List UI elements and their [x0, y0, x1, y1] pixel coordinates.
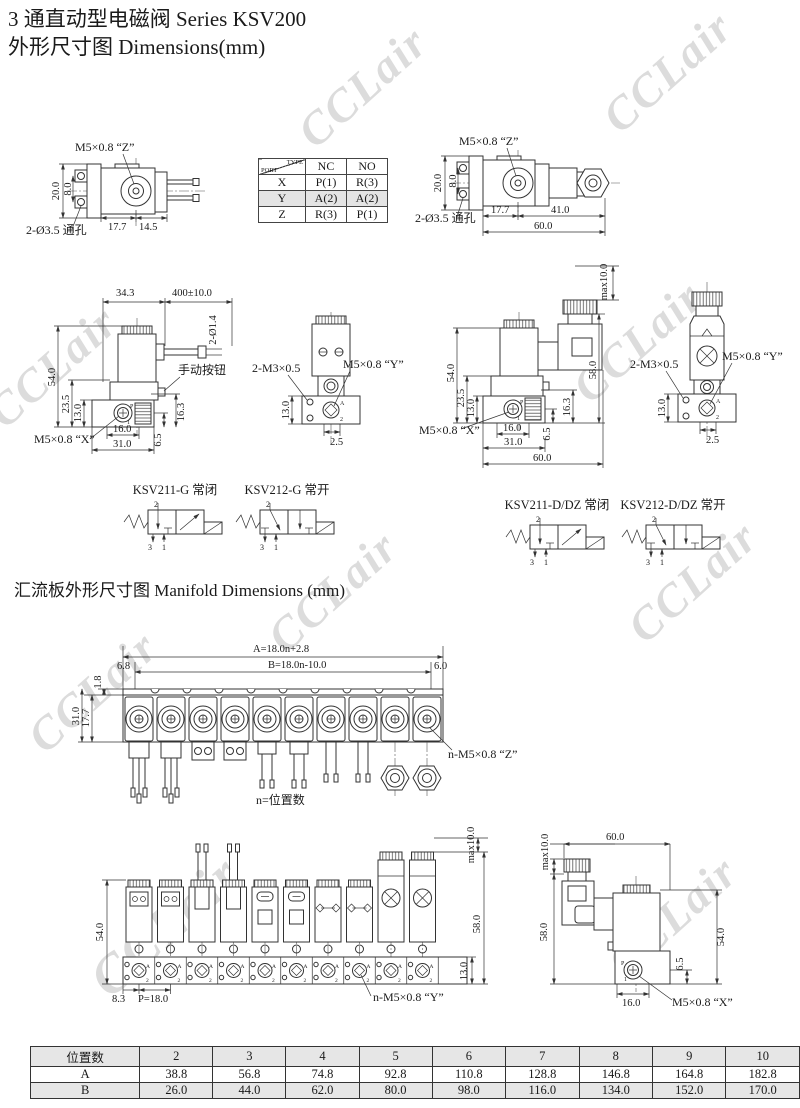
dim-label: 16.0 [113, 424, 131, 435]
dim-label: 13.0 [466, 399, 477, 417]
col-header: 5 [359, 1047, 432, 1067]
thread-callout: M5×0.8 “Z” [75, 140, 134, 154]
dim-label: 34.3 [116, 288, 134, 299]
ksv-g-front-view-drawing: A 2 13.0 2.5 2-M3×0.5 M5×0.8 “Y” [250, 312, 410, 452]
dim-label: 54.0 [446, 364, 457, 382]
dim-label: 1.8 [93, 675, 104, 688]
port-letter: 2 [209, 978, 212, 984]
dim-label: 6.8 [117, 661, 130, 672]
dim-label: 17.7 [108, 222, 126, 233]
dim-label: 23.5 [61, 395, 72, 413]
symbol-ksv211d: KSV211-D/DZ 常闭 2 3 1 [492, 494, 622, 573]
dim-label: 2-Ø1.4 [208, 315, 219, 345]
table-row: Z R(3) P(1) [259, 207, 388, 223]
symbol-label: KSV212-D/DZ 常开 [608, 494, 738, 513]
dim-label: 8.3 [112, 994, 125, 1005]
dim-label: 2.5 [330, 437, 343, 448]
port-letter: A [304, 964, 308, 970]
screws-callout: 2-M3×0.5 [252, 361, 300, 375]
position-size-table: 位置数 2 3 4 5 6 7 8 9 10 A 38.8 56.8 74.8 … [30, 1046, 800, 1099]
manual-button-callout: 手动按钮 [178, 362, 226, 377]
value-cell: 44.0 [213, 1083, 286, 1099]
valve-symbol-nc: 2 3 1 [118, 498, 233, 553]
no-cell: A(2) [347, 191, 388, 207]
dim-label: 58.0 [472, 915, 483, 933]
col-nc: NC [306, 159, 347, 175]
dim-label: 20.0 [51, 182, 62, 200]
port-cell: X [259, 175, 306, 191]
thread-callout: M5×0.8 “X” [419, 423, 480, 437]
port-letter: A [430, 964, 434, 970]
corner-type-label: TYPE [287, 159, 303, 166]
dim-label: 16.0 [622, 998, 640, 1009]
port-number: 3 [148, 543, 152, 552]
dim-label: 20.0 [433, 174, 444, 192]
table-row-a: A 38.8 56.8 74.8 92.8 110.8 128.8 146.8 … [31, 1067, 800, 1083]
dim-label: 13.0 [657, 399, 668, 417]
port-letter: A [335, 964, 339, 970]
thread-callout: M5×0.8 “Y” [343, 357, 404, 371]
value-cell: 80.0 [359, 1083, 432, 1099]
port-letter: 1 [624, 977, 627, 983]
port-letter: A [209, 964, 213, 970]
port-letter: 2 [241, 978, 244, 984]
port-letter: 2 [367, 978, 370, 984]
dim-label: 6.5 [542, 427, 553, 440]
dim-label: 54.0 [47, 368, 58, 386]
row-label: B [31, 1083, 140, 1099]
symbol-ksv211g: KSV211-G 常闭 2 3 1 [110, 479, 240, 558]
dim-label: P=18.0 [138, 994, 168, 1005]
dim-label: 58.0 [539, 923, 550, 941]
col-no: NO [347, 159, 388, 175]
port-letter: A [716, 399, 721, 405]
dim-label: 60.0 [606, 832, 624, 843]
port-number: 2 [652, 515, 656, 524]
port-letter: 2 [340, 417, 343, 423]
dim-label: 13.0 [281, 401, 292, 419]
screws-callout: 2-M3×0.5 [630, 357, 678, 371]
port-letter: 2 [304, 978, 307, 984]
dim-label: 17.7 [491, 205, 509, 216]
ksv-g-side-view-drawing: 34.3 400±10.0 2-Ø1.4 P 1 54.0 23.5 13.0 … [20, 282, 240, 467]
dim-label: 17.7 [81, 709, 92, 727]
dim-label: 31.0 [113, 439, 131, 450]
col-header: 7 [506, 1047, 579, 1067]
port-letter: A [398, 964, 402, 970]
dim-label: 16.3 [562, 398, 573, 416]
value-cell: 152.0 [653, 1083, 726, 1099]
value-cell: 38.8 [140, 1067, 213, 1083]
dim-label: 54.0 [95, 923, 106, 941]
dim-label: 6.5 [153, 433, 164, 446]
port-letter: 1 [517, 416, 520, 422]
symbol-label: KSV212-G 常开 [222, 479, 352, 498]
port-letter: A [340, 401, 345, 407]
table-row: Y A(2) A(2) [259, 191, 388, 207]
thread-callout: n-M5×0.8 “Y” [373, 990, 444, 1004]
port-number: 3 [646, 558, 650, 567]
symbol-label: KSV211-G 常闭 [110, 479, 240, 498]
dim-label: B=18.0n-10.0 [268, 660, 326, 671]
value-cell: 26.0 [140, 1083, 213, 1099]
port-letter: 2 [178, 978, 181, 984]
port-number: 1 [544, 558, 548, 567]
valve-top-view-g-drawing: 20.0 8.0 17.7 14.5 M5×0.8 “Z” 2-Ø3.5 通孔 [25, 138, 255, 253]
dim-label: 60.0 [533, 453, 551, 464]
value-cell: 164.8 [653, 1067, 726, 1083]
valve-symbol-no: 2 3 1 [230, 498, 345, 553]
holes-callout: 2-Ø3.5 通孔 [26, 223, 87, 237]
port-number: 1 [274, 543, 278, 552]
port-number: 1 [162, 543, 166, 552]
value-cell: 56.8 [213, 1067, 286, 1083]
dim-label: 13.0 [459, 962, 470, 980]
value-cell: 62.0 [286, 1083, 359, 1099]
table-row-b: B 26.0 44.0 62.0 80.0 98.0 116.0 134.0 1… [31, 1083, 800, 1099]
port-number: 1 [660, 558, 664, 567]
port-letter: A [178, 964, 182, 970]
dim-label: 6.0 [434, 661, 447, 672]
page-title-line1: 3 通直动型电磁阀 Series KSV200 [8, 6, 306, 34]
dim-label: 16.0 [503, 423, 521, 434]
symbol-label: KSV211-D/DZ 常闭 [492, 494, 622, 513]
value-cell: 182.8 [726, 1067, 800, 1083]
col-header: 9 [653, 1047, 726, 1067]
dim-label: 6.5 [675, 957, 686, 970]
port-number: 2 [154, 500, 158, 509]
col-header: 6 [432, 1047, 505, 1067]
port-letter: A [146, 964, 150, 970]
dim-label: max10.0 [466, 827, 477, 863]
dim-label: 54.0 [716, 928, 727, 946]
port-cell: Y [259, 191, 306, 207]
value-cell: 110.8 [432, 1067, 505, 1083]
value-cell: 128.8 [506, 1067, 579, 1083]
port-letter: 2 [146, 978, 149, 984]
no-cell: R(3) [347, 175, 388, 191]
corner-port-label: PORT [261, 167, 277, 174]
port-letter: 2 [398, 978, 401, 984]
manifold-section-title: 汇流板外形尺寸图 Manifold Dimensions (mm) [14, 576, 345, 601]
dim-label: 13.0 [73, 404, 84, 422]
port-number: 2 [266, 500, 270, 509]
port-letter: A [241, 964, 245, 970]
value-cell: 146.8 [579, 1067, 652, 1083]
port-letter: A [272, 964, 276, 970]
thread-callout: n-M5×0.8 “Z” [448, 747, 517, 761]
value-cell: 98.0 [432, 1083, 505, 1099]
holes-callout: 2-Ø3.5 通孔 [415, 211, 476, 225]
col-header: 10 [726, 1047, 800, 1067]
manifold-side-view-drawing: 60.0 max10.0 P 1 58.0 54.0 6.5 16.0 M5×0… [520, 818, 780, 1018]
dim-label: 58.0 [588, 361, 599, 379]
header-label: 位置数 [31, 1047, 140, 1067]
nc-cell: P(1) [306, 175, 347, 191]
thread-callout: M5×0.8 “Y” [722, 349, 783, 363]
page-title: 3 通直动型电磁阀 Series KSV200 外形尺寸图 Dimensions… [8, 6, 306, 61]
value-cell: 92.8 [359, 1067, 432, 1083]
table-row: X P(1) R(3) [259, 175, 388, 191]
port-letter: 2 [430, 978, 433, 984]
value-cell: 116.0 [506, 1083, 579, 1099]
port-number: 2 [536, 515, 540, 524]
col-header: 2 [140, 1047, 213, 1067]
port-number: 3 [260, 543, 264, 552]
dim-label: 41.0 [551, 205, 569, 216]
ksv-d-front-view-drawing: A 2 13.0 2.5 2-M3×0.5 M5×0.8 “Y” [628, 268, 800, 453]
port-cell: Z [259, 207, 306, 223]
valve-symbol-no: 2 3 1 [616, 513, 731, 568]
value-cell: 170.0 [726, 1083, 800, 1099]
dim-label: max10.0 [540, 834, 551, 870]
col-header: 3 [213, 1047, 286, 1067]
dim-label: 14.5 [139, 222, 157, 233]
value-cell: 74.8 [286, 1067, 359, 1083]
thread-callout: M5×0.8 “X” [34, 432, 95, 446]
nc-cell: R(3) [306, 207, 347, 223]
valve-symbol-nc: 2 3 1 [500, 513, 615, 568]
dim-label: 60.0 [534, 221, 552, 232]
row-label: A [31, 1067, 140, 1083]
table-header-row: 位置数 2 3 4 5 6 7 8 9 10 [31, 1047, 800, 1067]
port-number: 3 [530, 558, 534, 567]
port-table-corner: TYPE PORT [259, 159, 306, 175]
dim-label: 8.0 [63, 182, 74, 195]
dim-label: max10.0 [599, 264, 610, 300]
no-cell: P(1) [347, 207, 388, 223]
port-type-table: TYPE PORT NC NO X P(1) R(3) Y A(2) A(2) … [258, 158, 388, 223]
ksv-d-side-view-drawing: max10.0 P 1 54.0 23.5 13.0 58.0 16.3 6.5… [425, 258, 640, 473]
page-title-line2: 外形尺寸图 Dimensions(mm) [8, 34, 306, 62]
manifold-front-view-drawing: A 2 A 2 A 2 A 2 A 2 A 2 A 2 A 2 A 2 A 2 … [90, 832, 530, 1017]
manifold-top-view-drawing: A=18.0n+2.8 B=18.0n-10.0 6.8 6.0 1.8 17.… [40, 632, 540, 817]
dim-label: 8.0 [448, 174, 459, 187]
port-letter: 2 [335, 978, 338, 984]
value-cell: 134.0 [579, 1083, 652, 1099]
dim-label: 31.0 [71, 707, 82, 725]
nc-cell: A(2) [306, 191, 347, 207]
symbol-ksv212d: KSV212-D/DZ 常开 2 3 1 [608, 494, 738, 573]
thread-callout: M5×0.8 “X” [672, 995, 733, 1009]
dim-label: 2.5 [706, 435, 719, 446]
watermark: CCLair [592, 0, 743, 143]
symbol-ksv212g: KSV212-G 常开 2 3 1 [222, 479, 352, 558]
dim-label: 31.0 [504, 437, 522, 448]
port-letter: A [367, 964, 371, 970]
valve-top-view-d-drawing: 20.0 8.0 17.7 41.0 60.0 M5×0.8 “Z” 2-Ø3.… [415, 132, 665, 252]
dim-label: A=18.0n+2.8 [253, 644, 309, 655]
col-header: 4 [286, 1047, 359, 1067]
port-letter: 2 [716, 415, 719, 421]
col-header: 8 [579, 1047, 652, 1067]
dim-label: 16.3 [176, 403, 187, 421]
port-letter: 2 [272, 978, 275, 984]
dim-label: 400±10.0 [172, 288, 212, 299]
caption: n=位置数 [256, 792, 305, 807]
thread-callout: M5×0.8 “Z” [459, 134, 518, 148]
